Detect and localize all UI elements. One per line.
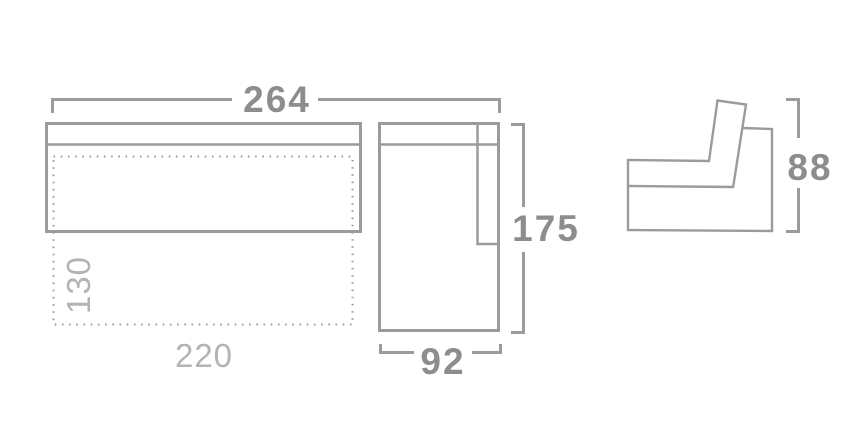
dimension-chaise-width: 92 bbox=[381, 341, 501, 382]
dimension-88-top-segment bbox=[786, 100, 799, 139]
dimension-264-left-segment bbox=[53, 100, 233, 114]
dimension-175-label: 175 bbox=[512, 208, 580, 249]
dimension-130-label: 130 bbox=[60, 256, 97, 314]
side-seat-bottom-line bbox=[628, 186, 733, 187]
dimension-264-right-segment bbox=[318, 100, 500, 114]
side-seat-top-line bbox=[628, 160, 710, 161]
diagram-canvas: 264 130 220 175 92 bbox=[0, 0, 852, 432]
chaise-top-view bbox=[379, 124, 499, 331]
dimension-175-bottom-segment bbox=[511, 252, 524, 333]
dimension-seat-height: 88 bbox=[786, 100, 833, 232]
dimension-88-label: 88 bbox=[787, 147, 832, 188]
side-profile-view bbox=[628, 101, 772, 232]
chaise-side-band-line bbox=[478, 124, 499, 244]
dimension-220-label: 220 bbox=[175, 337, 233, 374]
dimension-chaise-depth: 175 bbox=[511, 125, 580, 333]
side-body-outline bbox=[628, 128, 772, 231]
side-backrest-outline bbox=[709, 101, 746, 189]
bed-extension-dotted-outline bbox=[54, 157, 353, 325]
chaise-top-outline bbox=[380, 124, 499, 331]
sofa-top-outline bbox=[47, 124, 361, 232]
dimension-92-label: 92 bbox=[420, 341, 465, 382]
dimension-92-right-segment bbox=[472, 344, 501, 353]
dimension-88-bottom-segment bbox=[786, 188, 799, 232]
dimension-overall-width: 264 bbox=[53, 79, 500, 120]
sofa-top-view: 130 220 bbox=[46, 124, 361, 375]
dimension-264-label: 264 bbox=[243, 79, 311, 120]
dimension-92-left-segment bbox=[381, 344, 415, 353]
dimension-175-top-segment bbox=[511, 125, 524, 208]
furniture-dimension-diagram: 264 130 220 175 92 bbox=[0, 0, 852, 432]
